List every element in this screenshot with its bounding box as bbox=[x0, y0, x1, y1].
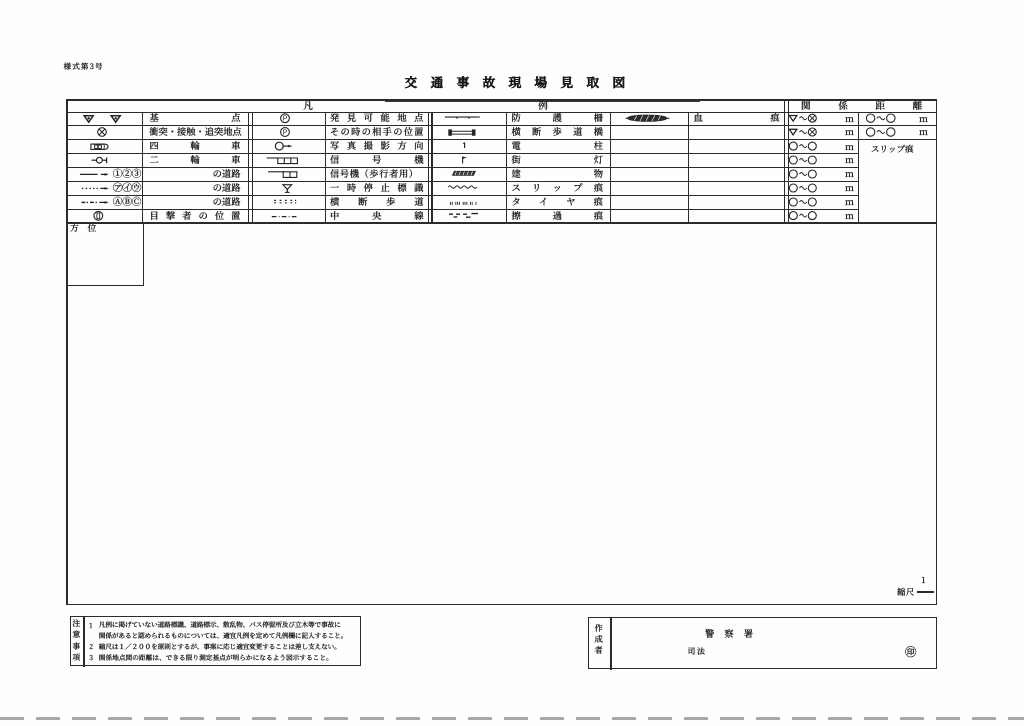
svg-text:P: P bbox=[283, 130, 288, 137]
svg-text:P: P bbox=[283, 116, 288, 123]
